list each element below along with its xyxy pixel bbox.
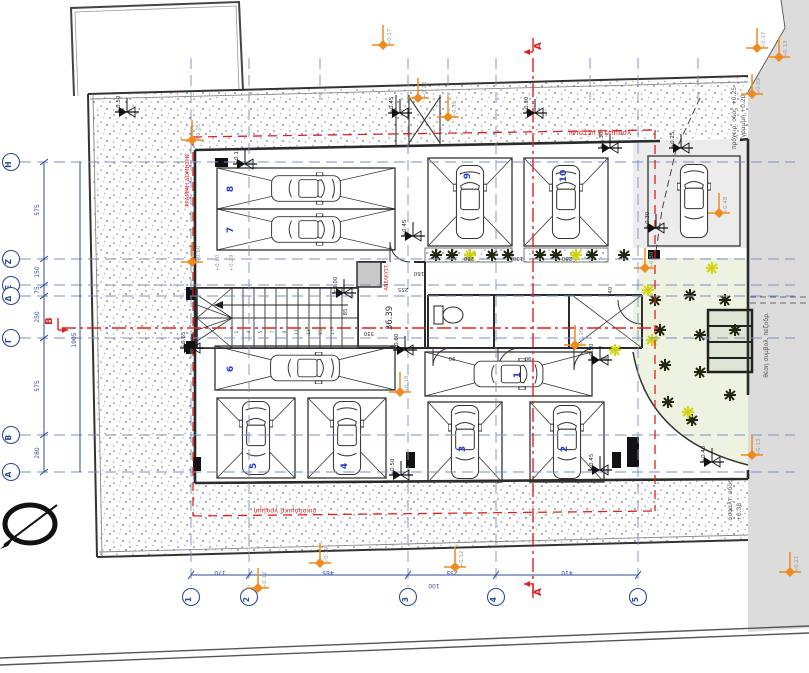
stall-number: 4	[340, 463, 350, 469]
dim-value: 465	[322, 569, 334, 576]
section-label-b: Β	[44, 317, 55, 325]
car-rot	[272, 214, 341, 246]
building-line-left-label: ΓΡΑΜΜΗ ΔΟΜΗΣΗΣ	[185, 153, 191, 207]
level-value: +0.40	[701, 445, 707, 462]
pergola-grid	[708, 310, 752, 372]
car-rot	[271, 352, 340, 384]
stair-step-number: 13	[306, 329, 312, 335]
dim-value: 575	[34, 204, 41, 216]
car-top-view	[677, 165, 711, 238]
stair-step-number: 7	[270, 330, 276, 333]
level-value: +0.18	[404, 375, 410, 392]
grid-bubble-label: Δ	[4, 296, 13, 302]
stall-number: 10	[559, 170, 569, 183]
interior-dim: 130	[512, 255, 523, 261]
building-line-bottom-label: οικοδομική γραμμή	[254, 507, 317, 515]
dim-value: 410	[561, 569, 573, 576]
level-value: +0.45	[589, 453, 595, 470]
stall-number: 1	[513, 372, 523, 378]
stall-number: 2	[560, 446, 570, 452]
stall-number: 5	[249, 463, 259, 469]
interior-dim: 255	[397, 286, 408, 292]
grid-bubble-label: Η	[4, 161, 13, 167]
level-note: +0.29	[229, 254, 235, 271]
level-value: +0.17	[387, 28, 393, 45]
car-top-view	[448, 406, 482, 479]
street-label: πρόχειρ. οδός +0.25	[731, 87, 738, 149]
dim-value: 575	[34, 380, 41, 392]
level-value: +0.12	[459, 551, 465, 568]
level-value: +0.13	[756, 438, 762, 455]
building: 1357911131517	[186, 95, 752, 483]
level-value: +0.05	[196, 123, 202, 140]
interior-dim: 140	[608, 286, 614, 297]
stall-number: 6	[226, 366, 236, 372]
grid-bubble-label: Α	[4, 472, 13, 478]
level-value: +0.50	[390, 458, 396, 475]
level-value: +0.30	[524, 96, 530, 113]
level-note: +0.60	[215, 254, 221, 271]
stair-step-number: 17	[330, 329, 336, 335]
stall-number: 7	[226, 227, 236, 233]
floor-plan-page: 1357911131517	[0, 0, 809, 673]
level-value: +0.30	[649, 251, 655, 268]
lobby-area-label: 36.39	[385, 306, 395, 330]
stall-number: 8	[226, 186, 236, 192]
level-value: +0.35	[452, 100, 458, 117]
interior-dim: 280	[463, 255, 474, 261]
level-value: +0.45	[402, 219, 408, 236]
level-value: +0.02	[756, 78, 762, 95]
level-value: +0.17	[761, 31, 767, 48]
street-label: θέση συμβολ. πεζοδρ.	[763, 312, 770, 378]
dim-value: 100	[428, 582, 440, 589]
street-label: +0.38	[736, 503, 743, 522]
dim-value: 150	[34, 266, 41, 278]
level-value: +0.50	[116, 95, 122, 112]
grid-bubble-label: 4	[489, 597, 498, 602]
grid-bubble-label: 2	[242, 597, 251, 602]
level-value: +0.48	[723, 196, 729, 213]
dim-total-value: 1905	[71, 332, 78, 347]
interior-dim: 330	[363, 330, 374, 336]
grid-bubble-label: 3	[401, 597, 410, 602]
street-label: ασφαλτ. οδός	[727, 479, 734, 520]
interior-dim: 280	[561, 255, 572, 261]
stair-step-number: 5	[258, 330, 264, 333]
staircase: 1357911131517	[197, 288, 358, 348]
level-value: +0.10	[579, 328, 585, 345]
dim-value: 75	[34, 286, 41, 294]
stall-number: 9	[463, 173, 473, 179]
grid-bubble-label: 5	[631, 597, 640, 602]
level-value: +0.13	[783, 40, 789, 57]
level-value: +0.65	[181, 331, 187, 348]
interior-dim: 90	[600, 355, 607, 361]
dim-value: 170	[214, 569, 226, 576]
level-value: +0.45	[389, 96, 395, 113]
car-top-view	[272, 173, 341, 205]
level-value: +0.30	[645, 211, 651, 228]
floor-plan-drawing: 1357911131517	[0, 0, 809, 673]
level-value: +0.12	[262, 572, 268, 589]
level-value: +0.25	[670, 131, 676, 148]
level-value: +0.21	[794, 556, 800, 573]
grid-bubble-label: 1	[184, 597, 193, 602]
car-top-view	[550, 406, 584, 479]
car-rot	[272, 173, 341, 205]
dim-value: 250	[34, 311, 41, 323]
interior-dim: 160	[413, 270, 424, 276]
level-value: +0.23	[422, 81, 428, 98]
section-label-a2: Α	[533, 588, 544, 596]
interior-dim: 85	[343, 308, 349, 315]
level-value: +0.30	[599, 131, 605, 148]
level-value: +0.50	[589, 343, 595, 360]
level-value: +0.60	[196, 245, 202, 262]
street-label: γραμμή +0.20	[740, 94, 747, 137]
level-value: +0.19	[324, 546, 330, 563]
car-top-view	[271, 352, 340, 384]
grid-bubble-label: Β	[4, 434, 13, 440]
grid-bubble-label: Ζ	[4, 258, 13, 264]
interior-dim: 90	[448, 355, 455, 361]
stair-step-number: 1	[234, 330, 240, 333]
elevator-label: ΑΝΕΛΚΥΣΤ.	[384, 264, 390, 291]
level-value: +0.15	[234, 147, 240, 164]
stair-step-number: 9	[282, 330, 288, 333]
section-label-a: Α	[533, 42, 544, 50]
stair-step-number: 11	[294, 329, 300, 335]
stair-step-number: 15	[318, 329, 324, 335]
level-value: +0.60	[394, 333, 400, 350]
dim-value: 280	[34, 447, 41, 459]
grid-bubble-label: Γ	[4, 338, 13, 343]
interior-dim: 90	[524, 355, 531, 361]
level-value: ±0.00	[333, 276, 339, 293]
elevator-shaft	[357, 262, 381, 287]
stall-number: 3	[458, 446, 468, 452]
car-top-view	[272, 214, 341, 246]
